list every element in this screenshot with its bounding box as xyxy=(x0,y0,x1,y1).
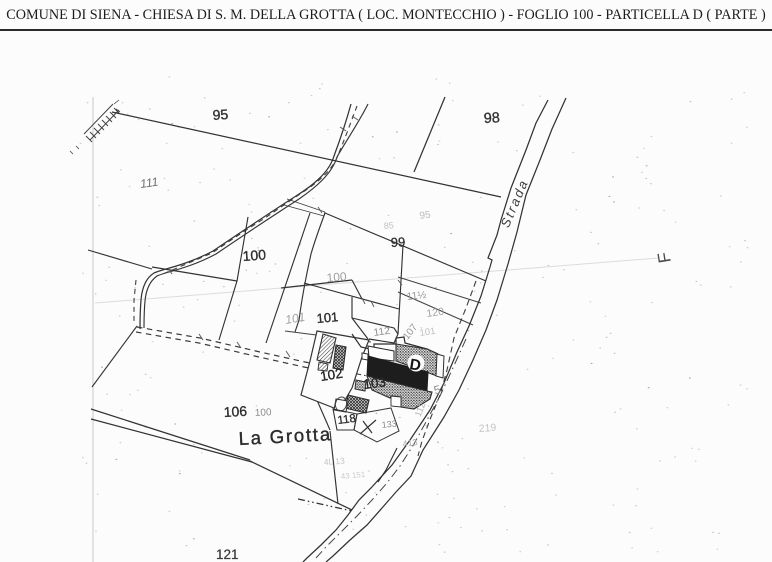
svg-text:100: 100 xyxy=(326,269,347,285)
svg-text:95: 95 xyxy=(212,106,229,123)
svg-text:101: 101 xyxy=(419,326,436,339)
svg-text:COMUNE DI SIENA - CHIESA DI S.: COMUNE DI SIENA - CHIESA DI S. M. DELLA … xyxy=(6,7,766,23)
svg-text:103: 103 xyxy=(363,374,387,392)
svg-text:118: 118 xyxy=(337,413,357,427)
svg-text:95: 95 xyxy=(419,209,432,222)
svg-text:98: 98 xyxy=(483,110,500,127)
svg-text:99: 99 xyxy=(390,234,405,250)
svg-text:85: 85 xyxy=(383,220,394,231)
svg-text:120: 120 xyxy=(426,306,445,320)
svg-text:4L 13: 4L 13 xyxy=(323,456,345,467)
svg-text:106: 106 xyxy=(223,403,247,420)
svg-text:111: 111 xyxy=(139,175,159,191)
svg-text:121: 121 xyxy=(216,547,239,562)
svg-text:11½: 11½ xyxy=(406,289,427,303)
svg-text:219: 219 xyxy=(478,422,496,435)
svg-text:100: 100 xyxy=(242,246,267,264)
svg-text:413: 413 xyxy=(402,437,418,449)
svg-text:133: 133 xyxy=(381,418,397,430)
svg-text:112: 112 xyxy=(373,325,391,339)
svg-text:100: 100 xyxy=(255,407,273,419)
svg-text:101: 101 xyxy=(316,309,339,326)
